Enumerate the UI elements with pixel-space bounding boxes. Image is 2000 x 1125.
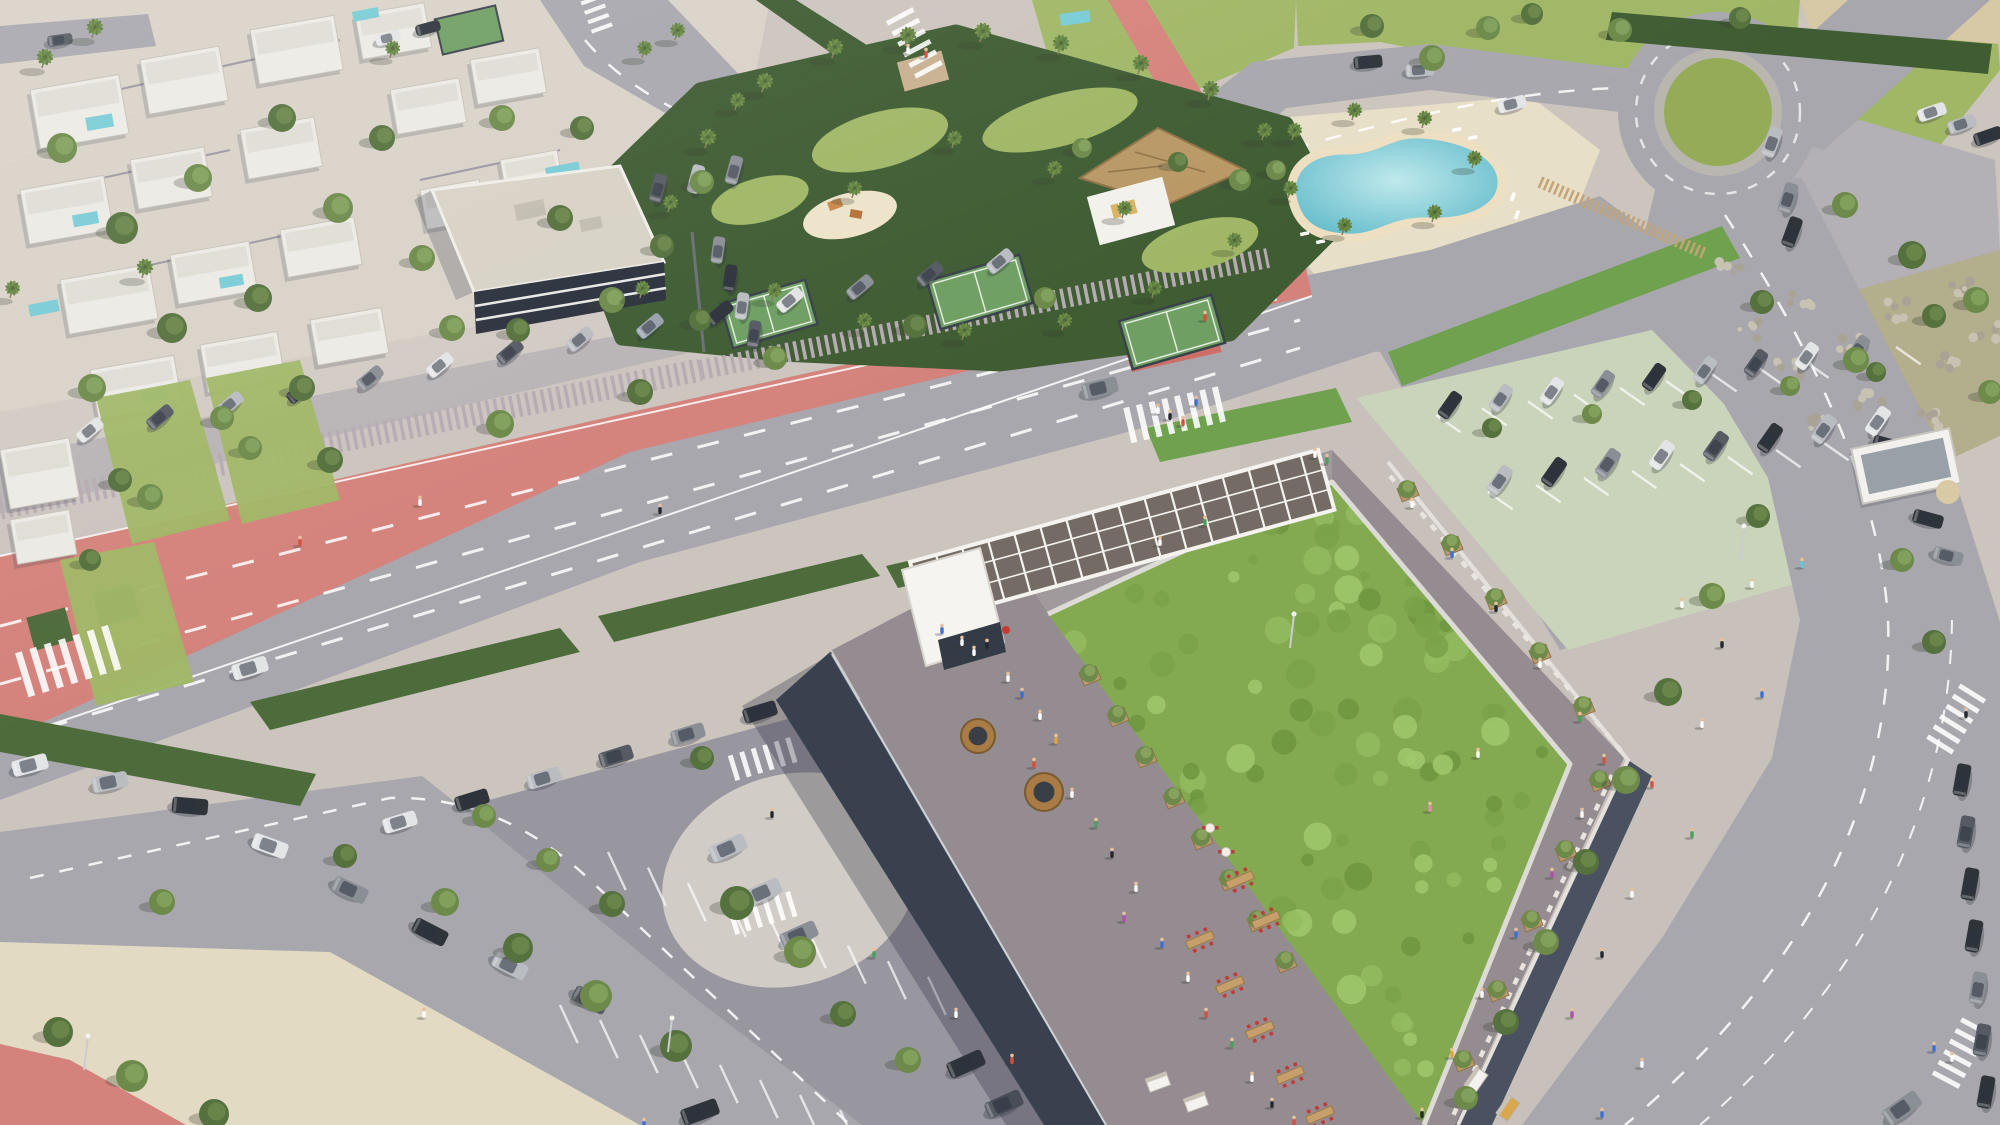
tree-canopy-light [1615, 20, 1629, 34]
tree-canopy-light [497, 108, 513, 124]
palm-shadow [654, 40, 677, 47]
palm-shadow [621, 58, 644, 65]
tree-canopy-light [417, 248, 433, 264]
person-body [1650, 781, 1653, 788]
roof-planting [1304, 822, 1332, 850]
person-head [924, 48, 928, 52]
tree-canopy-light [1541, 932, 1557, 948]
person-body [658, 507, 661, 514]
tree-canopy-light [1589, 406, 1601, 418]
palm-crown [1423, 116, 1426, 119]
roundabout-grass [1664, 58, 1772, 166]
person-body [1602, 757, 1605, 764]
car-glass [724, 273, 735, 286]
person-head [1514, 928, 1518, 932]
person-body [1181, 419, 1184, 426]
palm-shadow [882, 46, 908, 54]
roof-planting [1358, 588, 1381, 611]
person-head [940, 624, 944, 628]
tree-canopy-light [1528, 5, 1541, 18]
tree-canopy-light [1483, 18, 1497, 32]
palm-shadow [714, 110, 737, 117]
tree-canopy-light [377, 128, 393, 144]
person-head [1650, 778, 1654, 782]
person-head [1250, 1072, 1254, 1076]
person-body [1070, 791, 1073, 798]
rock [1734, 265, 1739, 270]
tree-canopy-light [276, 107, 293, 124]
rock [1940, 351, 1950, 361]
roof-planting [1271, 730, 1296, 755]
cafe-table [1206, 824, 1215, 833]
person-body [422, 1011, 425, 1018]
person-head [1700, 718, 1704, 722]
person-body [1313, 451, 1316, 458]
palm-shadow [682, 148, 708, 156]
tree-canopy-light [903, 1050, 919, 1066]
person-body [1800, 561, 1803, 568]
palm-crown [953, 136, 956, 139]
person-head [1578, 712, 1582, 716]
person-head [1160, 938, 1164, 942]
roof-planting [1486, 796, 1502, 812]
person-head [1450, 548, 1454, 552]
rock [1930, 409, 1938, 417]
tree-canopy-light [1840, 195, 1856, 211]
palm-shadow [809, 58, 835, 66]
person-body [1720, 641, 1723, 648]
rock [1730, 271, 1735, 276]
roof-planting [1303, 546, 1331, 574]
person-body [1630, 891, 1633, 898]
palm-crown [1053, 166, 1056, 169]
person-head [1602, 754, 1606, 758]
tree-canopy-light [1707, 586, 1723, 602]
roof-planting [1403, 1032, 1417, 1046]
person-head [1580, 808, 1584, 812]
roof-planting [1368, 614, 1397, 643]
roof-planting [1491, 836, 1506, 851]
roof-planting [1334, 545, 1359, 570]
rock [1804, 299, 1814, 309]
person-head [1570, 1008, 1574, 1012]
person-head [1094, 818, 1098, 822]
person-head [1110, 848, 1114, 852]
tree-canopy-light [577, 118, 591, 132]
roof-planting [1295, 612, 1320, 637]
palm-shadow [369, 58, 392, 65]
person-head [1760, 688, 1764, 692]
person-body [1450, 1051, 1453, 1058]
tree-canopy-light [607, 290, 623, 306]
person-head [1020, 688, 1024, 692]
person-body [1020, 691, 1023, 698]
roof-planting [1415, 880, 1428, 893]
person-body [1700, 721, 1703, 728]
tree-canopy-light [589, 984, 608, 1003]
person-body [1570, 1011, 1573, 1018]
roof-planting [1361, 965, 1382, 986]
person-body [1186, 975, 1189, 982]
roof-planting [1265, 617, 1292, 644]
palm-crown [669, 200, 672, 203]
person-body [1134, 885, 1137, 892]
person-body [1292, 1119, 1295, 1125]
person-body [1204, 1011, 1207, 1018]
light-pole-head [670, 1016, 675, 1021]
roof-planting [1334, 763, 1357, 786]
rock [1858, 394, 1866, 402]
roof-planting [1536, 746, 1548, 758]
roof-planting [1373, 771, 1388, 786]
palm-shadow [831, 198, 854, 205]
tree-canopy-light [1851, 350, 1867, 366]
palm-shadow [1101, 218, 1124, 225]
rock [1788, 290, 1796, 298]
roof-planting [1332, 909, 1356, 933]
tree-canopy-light [770, 348, 784, 362]
person-head [1203, 311, 1207, 315]
palm-crown [906, 33, 910, 37]
person-body [1580, 811, 1583, 818]
person-body [1032, 761, 1035, 768]
person-head [1410, 498, 1414, 502]
roof-planting [1147, 696, 1166, 715]
tree-canopy-light [1897, 550, 1911, 564]
tree-canopy-light [245, 438, 259, 452]
palm-shadow [119, 278, 145, 286]
person-head [1800, 558, 1804, 562]
palm-crown [143, 265, 147, 269]
tree-canopy-light [1175, 154, 1187, 166]
person-head [1186, 972, 1190, 976]
tree-canopy-light [512, 937, 530, 955]
aerial-render-scene [0, 0, 2000, 1125]
tree-canopy-light [1501, 1012, 1517, 1028]
palm-crown [736, 98, 739, 101]
roof-planting [1401, 937, 1420, 956]
scene-canvas [0, 0, 2000, 1125]
palm-crown [43, 55, 47, 59]
person-body [940, 627, 943, 634]
person-head [1010, 1054, 1014, 1058]
roof-planting [1295, 584, 1315, 604]
palm-shadow [1041, 330, 1064, 337]
tree-canopy-light [1929, 306, 1943, 320]
roof-planting [1338, 699, 1359, 720]
roof-planting [1248, 554, 1258, 564]
person-head [1494, 602, 1498, 606]
person-body [1550, 871, 1553, 878]
person-body [1094, 821, 1097, 828]
person-head [985, 639, 989, 643]
tree-canopy-light [1427, 48, 1443, 64]
tree-canopy-light [1581, 852, 1597, 868]
roof-planting [1314, 523, 1339, 548]
person-body [1122, 915, 1125, 922]
palm-crown [1433, 210, 1436, 213]
rock [1936, 360, 1945, 369]
roof-planting [1400, 1018, 1413, 1031]
tree-canopy-light [332, 197, 350, 215]
roof-planting [1483, 858, 1497, 872]
car [1968, 125, 2000, 151]
tree-canopy-light [297, 378, 313, 394]
person-head [1203, 516, 1207, 520]
person-head [1032, 758, 1036, 762]
light-pole-head [86, 1034, 91, 1039]
person-head [1292, 1116, 1296, 1120]
roof-planting [1321, 877, 1344, 900]
palm-shadow [19, 68, 45, 76]
person-body [1168, 413, 1171, 420]
roof-planting [1154, 591, 1170, 607]
person-body [1156, 407, 1159, 414]
tree-canopy-light [555, 208, 571, 224]
palm-crown [1059, 41, 1063, 45]
rock [1884, 313, 1891, 320]
palm-shadow [1331, 120, 1354, 127]
beach-umbrella [1936, 480, 1960, 504]
person-body [1410, 501, 1413, 508]
person-head [972, 646, 976, 650]
tree-canopy-light [657, 236, 671, 250]
palm-shadow [1411, 222, 1434, 229]
palm-shadow [1451, 168, 1474, 175]
palm-crown [706, 135, 710, 139]
roof-planting [1393, 715, 1417, 739]
person-head [1325, 454, 1329, 458]
tree-canopy-light [1753, 506, 1767, 520]
roof-planting [1360, 643, 1383, 666]
tree-canopy-light [1041, 289, 1054, 302]
palm-shadow [751, 300, 774, 307]
palm-crown [1289, 186, 1292, 189]
rock [1723, 262, 1732, 271]
tree-canopy-light [793, 940, 812, 959]
person-head [1156, 404, 1160, 408]
person-head [1313, 448, 1317, 452]
palm-crown [643, 46, 646, 49]
car-glass [748, 329, 759, 342]
tree-canopy-light [669, 1034, 688, 1053]
tree-canopy-light [635, 382, 651, 398]
tree-canopy-light [125, 1064, 144, 1083]
palm-shadow [69, 38, 95, 46]
person-head [1600, 1108, 1604, 1112]
palm-crown [863, 318, 866, 321]
person-head [1158, 536, 1162, 540]
roof-planting [1336, 834, 1349, 847]
person-body [1950, 1055, 1953, 1062]
tree-canopy-light [86, 377, 103, 394]
car [86, 770, 130, 797]
tree-canopy-light [1689, 392, 1701, 404]
palm-crown [1293, 128, 1296, 131]
roof-planting [1513, 792, 1530, 809]
person-body [1690, 831, 1693, 838]
person-body [1010, 1057, 1013, 1064]
person-head [1038, 710, 1042, 714]
car-glass [736, 301, 747, 314]
person-head [642, 1118, 646, 1122]
person-body [1110, 851, 1113, 858]
tree-canopy-light [252, 287, 269, 304]
rock [1902, 297, 1912, 307]
rock [1786, 299, 1793, 306]
roof-planting [1486, 877, 1501, 892]
person-head [1480, 988, 1484, 992]
person-body [298, 539, 301, 546]
person-body [1054, 737, 1057, 744]
person-body [1640, 1061, 1643, 1068]
palm-shadow [1401, 128, 1424, 135]
tree-canopy-light [208, 1103, 226, 1121]
palm-shadow [1035, 54, 1061, 62]
chair [1215, 826, 1219, 830]
person-body [1420, 1111, 1423, 1118]
round-pod-interior [969, 727, 988, 746]
rock [1714, 257, 1724, 267]
tree-canopy-light [1079, 140, 1091, 152]
palm-shadow [619, 298, 642, 305]
person-body [1494, 605, 1497, 612]
person-body [906, 47, 909, 54]
person-body [1964, 711, 1967, 718]
palm-shadow [1241, 140, 1264, 147]
rock [1737, 327, 1742, 332]
person-head [298, 536, 302, 540]
palm-crown [853, 186, 856, 189]
cafe-table [1222, 848, 1231, 857]
tree-canopy-light [86, 551, 99, 564]
person-body [1680, 601, 1683, 608]
roof-planting [1360, 571, 1370, 581]
rock [1959, 293, 1964, 298]
palm-shadow [931, 148, 954, 155]
rock [1968, 333, 1978, 343]
person-body [1600, 1111, 1603, 1118]
chair [1231, 850, 1235, 854]
person-head [1122, 912, 1126, 916]
roof-planting [1344, 863, 1372, 891]
roof-planting [1183, 763, 1200, 780]
palm-shadow [1115, 74, 1141, 82]
person-head [1630, 888, 1634, 892]
person-body [1160, 941, 1163, 948]
tree-canopy-light [494, 413, 511, 430]
chair [1202, 826, 1206, 830]
person-body [418, 499, 421, 506]
tree-canopy-light [56, 137, 74, 155]
person-head [954, 1008, 958, 1012]
person-head [1054, 734, 1058, 738]
person-body [1325, 457, 1328, 464]
tree-canopy-light [52, 1021, 70, 1039]
tree-canopy-light [115, 216, 134, 235]
hedge-boulevard-2 [598, 554, 880, 642]
roof-planting [1414, 854, 1432, 872]
tree-canopy-light [192, 167, 209, 184]
person-head [1270, 1098, 1274, 1102]
tree-canopy-light [479, 806, 493, 820]
round-pod-interior [1034, 782, 1055, 803]
tree-canopy-light [729, 890, 749, 910]
rock [1836, 345, 1844, 353]
person-head [1690, 828, 1694, 832]
rock [1948, 281, 1956, 289]
roof-planting [1394, 1059, 1411, 1076]
tree-canopy-light [166, 317, 184, 335]
tree-canopy-light [1662, 681, 1679, 698]
tree-canopy-light [543, 850, 557, 864]
tree-canopy-light [340, 846, 354, 860]
rock [1808, 418, 1817, 427]
tree-canopy-light [1489, 420, 1501, 432]
roof-planting [1248, 680, 1262, 694]
tree-canopy-light [1273, 162, 1285, 174]
person-head [1168, 410, 1172, 414]
palm-crown [1353, 108, 1356, 111]
rock [1962, 286, 1967, 291]
person-body [872, 951, 875, 958]
roof-planting [1398, 748, 1416, 766]
tree-canopy-light [696, 311, 709, 324]
person-body [1006, 675, 1009, 682]
roof-planting [1447, 872, 1462, 887]
person-head [422, 1008, 426, 1012]
palm-shadow [1267, 198, 1290, 205]
tree-canopy-light [1985, 382, 1999, 396]
person-head [1950, 1052, 1954, 1056]
palm-shadow [1185, 100, 1211, 108]
palm-crown [641, 286, 644, 289]
car-glass [52, 35, 64, 45]
palm-crown [833, 45, 837, 49]
tree-canopy-light [697, 172, 711, 186]
tree-canopy-light [1971, 290, 1987, 306]
person-body [1578, 715, 1581, 722]
tree-canopy-light [910, 316, 924, 330]
tree-canopy-light [115, 470, 129, 484]
person-head [1550, 868, 1554, 872]
person-body [1600, 951, 1603, 958]
tree-canopy-light [838, 1004, 854, 1020]
tree-canopy-light [1906, 244, 1923, 261]
palm-crown [11, 286, 14, 289]
rock [1931, 417, 1939, 425]
tree-canopy-light [1929, 632, 1943, 646]
rock [1965, 276, 1975, 286]
roof-planting [1228, 571, 1239, 582]
roof-planting [1462, 932, 1474, 944]
person-head [1428, 802, 1432, 806]
palm-crown [676, 28, 679, 31]
rock [1877, 397, 1887, 407]
roof-planting [1226, 744, 1255, 773]
person-head [1538, 658, 1542, 662]
palm-crown [763, 79, 767, 83]
palm-shadow [1211, 250, 1234, 257]
roof-planting [1481, 717, 1510, 746]
roof-planting [1150, 652, 1175, 677]
roof-planting [1290, 698, 1313, 721]
person-head [1450, 1048, 1454, 1052]
roof-planting [1301, 854, 1314, 867]
palm-crown [1263, 128, 1266, 131]
tree-canopy-light [439, 891, 456, 908]
rock [1777, 364, 1785, 372]
